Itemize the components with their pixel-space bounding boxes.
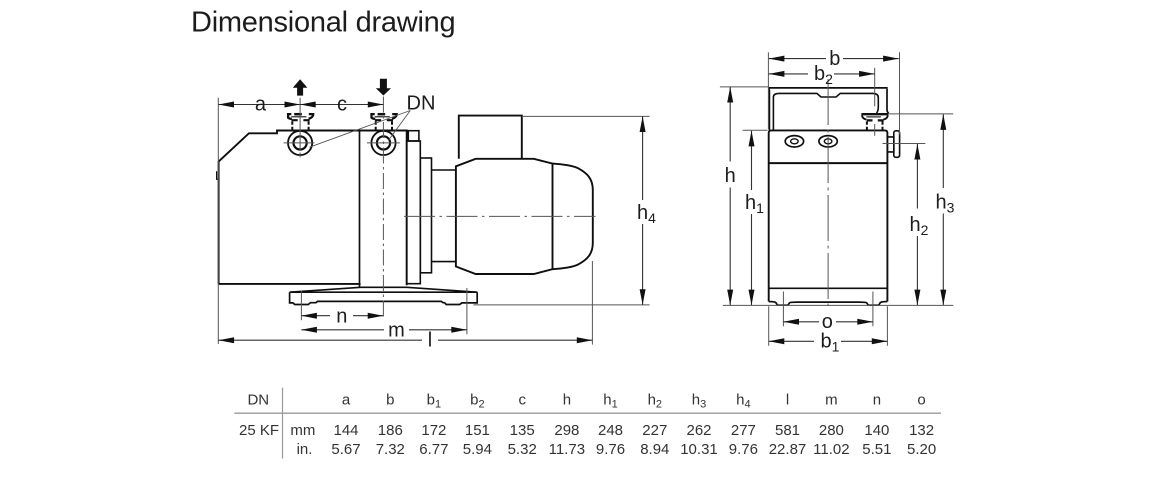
svg-text:b1: b1 — [821, 331, 840, 355]
svg-text:c: c — [337, 94, 347, 116]
svg-text:b: b — [829, 48, 840, 70]
svg-text:132: 132 — [909, 422, 934, 439]
svg-text:5.32: 5.32 — [508, 441, 537, 458]
svg-text:151: 151 — [465, 422, 490, 439]
svg-text:h: h — [725, 165, 736, 187]
svg-text:h3: h3 — [692, 391, 706, 410]
svg-text:m: m — [388, 319, 405, 341]
svg-text:298: 298 — [554, 422, 579, 439]
svg-text:h2: h2 — [648, 391, 662, 410]
svg-text:b2: b2 — [470, 391, 484, 410]
svg-text:5.20: 5.20 — [907, 441, 936, 458]
svg-text:m: m — [825, 391, 838, 408]
svg-text:l: l — [428, 330, 432, 352]
svg-text:248: 248 — [598, 422, 623, 439]
svg-text:581: 581 — [775, 422, 800, 439]
svg-text:n: n — [336, 305, 347, 327]
svg-text:280: 280 — [819, 422, 844, 439]
svg-text:o: o — [917, 391, 925, 408]
svg-text:Dimensional drawing: Dimensional drawing — [191, 6, 455, 38]
svg-text:227: 227 — [642, 422, 667, 439]
svg-text:5.51: 5.51 — [862, 441, 891, 458]
svg-text:a: a — [342, 391, 351, 408]
svg-text:135: 135 — [510, 422, 535, 439]
svg-text:h3: h3 — [936, 192, 955, 216]
svg-text:mm: mm — [290, 422, 315, 439]
svg-text:172: 172 — [421, 422, 446, 439]
svg-text:7.32: 7.32 — [376, 441, 405, 458]
svg-text:262: 262 — [686, 422, 711, 439]
svg-text:8.94: 8.94 — [640, 441, 669, 458]
svg-text:DN: DN — [247, 391, 269, 408]
svg-text:h2: h2 — [910, 214, 929, 238]
svg-text:h: h — [563, 391, 571, 408]
svg-text:186: 186 — [378, 422, 403, 439]
svg-text:l: l — [786, 391, 789, 408]
svg-text:h4: h4 — [736, 391, 750, 410]
svg-text:a: a — [255, 94, 267, 116]
svg-text:11.73: 11.73 — [549, 441, 585, 458]
svg-text:DN: DN — [407, 92, 436, 114]
svg-text:5.94: 5.94 — [463, 441, 492, 458]
svg-text:h1: h1 — [603, 391, 617, 410]
svg-text:10.31: 10.31 — [680, 441, 718, 458]
svg-text:5.67: 5.67 — [331, 441, 360, 458]
svg-text:b1: b1 — [427, 391, 441, 410]
svg-text:in.: in. — [297, 441, 313, 458]
svg-text:25 KF: 25 KF — [239, 422, 279, 439]
svg-text:n: n — [873, 391, 881, 408]
svg-text:9.76: 9.76 — [596, 441, 625, 458]
svg-text:277: 277 — [731, 422, 756, 439]
svg-text:b: b — [386, 391, 394, 408]
svg-text:6.77: 6.77 — [419, 441, 448, 458]
svg-text:11.02: 11.02 — [813, 441, 849, 458]
svg-text:22.87: 22.87 — [769, 441, 807, 458]
svg-text:h4: h4 — [637, 202, 656, 226]
svg-text:140: 140 — [864, 422, 889, 439]
svg-text:h1: h1 — [745, 192, 764, 216]
svg-text:144: 144 — [333, 422, 358, 439]
svg-text:9.76: 9.76 — [729, 441, 758, 458]
svg-text:c: c — [518, 391, 526, 408]
